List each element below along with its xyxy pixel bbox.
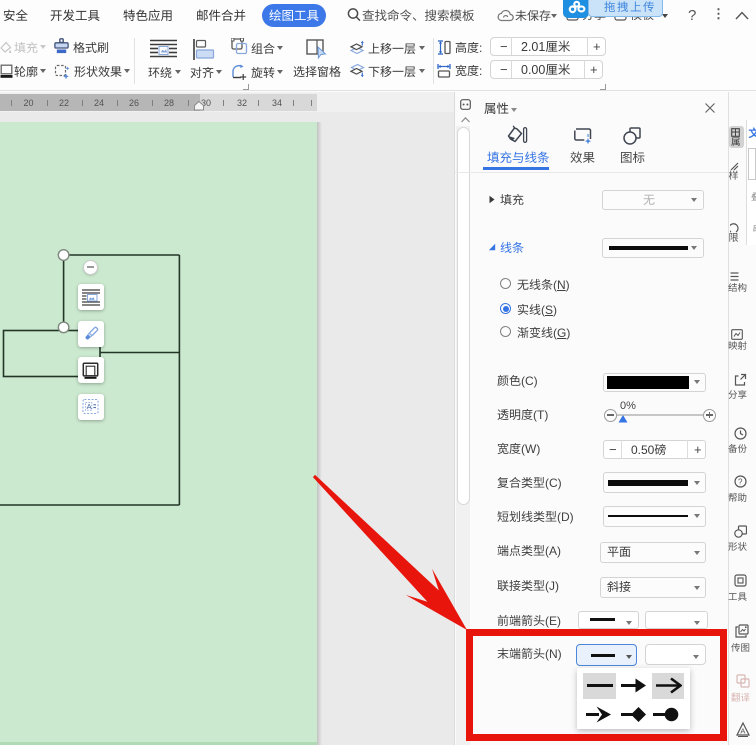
svg-text:A: A (87, 402, 92, 411)
svg-text:A: A (740, 727, 745, 736)
svg-text:?: ? (738, 477, 743, 486)
